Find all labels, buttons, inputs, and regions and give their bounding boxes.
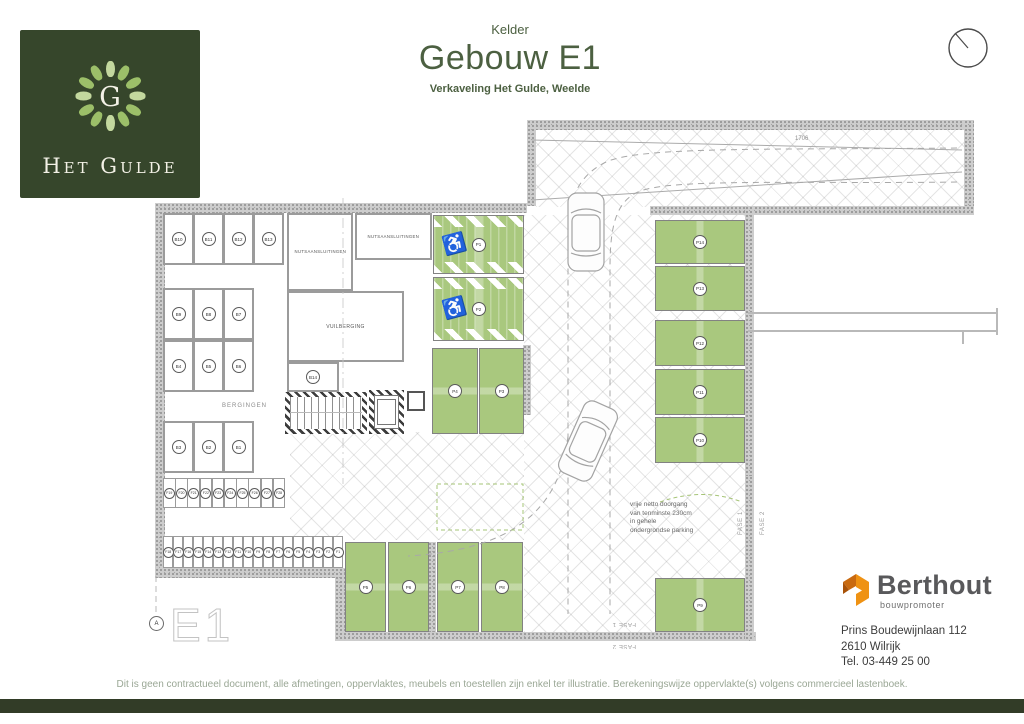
- pillar: [428, 542, 436, 632]
- bike-cell: F25: [236, 478, 249, 508]
- bike-cell: F21: [187, 478, 200, 508]
- bike-cell-label: F1: [333, 547, 344, 558]
- storage-room: B4: [163, 340, 194, 392]
- bike-cell: F6: [283, 536, 293, 568]
- room-label: B7: [232, 307, 246, 321]
- clearance-line: in gehele: [630, 518, 693, 527]
- address-line: Tel. 03-449 25 00: [841, 655, 967, 671]
- parking-spot-label: P6: [402, 580, 416, 594]
- room-label: B13: [262, 232, 276, 246]
- bike-cell-label: F28: [274, 488, 285, 499]
- storage-room: B9: [163, 288, 194, 340]
- parking-spot-label: P13: [693, 282, 707, 296]
- wall: [527, 120, 974, 130]
- bike-cell: F17: [173, 536, 183, 568]
- parking-spot: P14: [655, 220, 745, 264]
- bike-cell: F1: [333, 536, 343, 568]
- bike-cell-label: F23: [213, 488, 224, 499]
- parking-spot: P3: [479, 348, 524, 434]
- bike-cell: F13: [213, 536, 223, 568]
- storage-room: B2: [193, 421, 224, 473]
- fase-label: FASE 2: [760, 511, 766, 535]
- room-label: B8: [202, 307, 216, 321]
- wall: [745, 206, 754, 476]
- parking-spot: P8: [481, 542, 523, 632]
- developer-name: Berthout: [877, 570, 992, 601]
- bike-cell: F20: [175, 478, 188, 508]
- floorplan-sheet: G Het Gulde Kelder Gebouw E1 Verkaveling…: [0, 0, 1024, 724]
- bike-cell-label: F25: [237, 488, 248, 499]
- room-label: NUTSAANSLUITINGEN: [368, 234, 420, 239]
- parking-spot-label: P4: [448, 384, 462, 398]
- bike-cell: F22: [200, 478, 213, 508]
- parking-spot: P13: [655, 266, 745, 311]
- ramp-dimension: 1706: [795, 136, 808, 142]
- bike-cell-label: F24: [225, 488, 236, 499]
- room-label: B2: [202, 440, 216, 454]
- parking-spot-label: P7: [451, 580, 465, 594]
- wall: [335, 568, 345, 640]
- parking-spot: P5: [345, 542, 386, 632]
- corridor-label-bergingen: BERGINGEN: [222, 403, 267, 409]
- wall: [155, 568, 345, 578]
- parking-spot-label: P14: [693, 235, 707, 249]
- room-vuilberging: VUILBERGING: [287, 291, 404, 362]
- room-nutsaansluitingen-2: NUTSAANSLUITINGEN: [355, 213, 432, 260]
- bike-cell-label: F20: [176, 488, 187, 499]
- clearance-line: ondergrondse parking: [630, 527, 693, 536]
- bike-cell: F23: [212, 478, 225, 508]
- bike-cell: F2: [323, 536, 333, 568]
- parking-spot: P9: [655, 578, 745, 632]
- bike-cell-label: F21: [188, 488, 199, 499]
- parking-spot-label: P12: [693, 336, 707, 350]
- room-label: B9: [172, 307, 186, 321]
- bike-cell: F16: [183, 536, 193, 568]
- clearance-line: van tenminste 230cm: [630, 510, 693, 519]
- storage-room: B10: [163, 213, 194, 265]
- no-parking-stripes: [434, 278, 523, 289]
- parking-spot-label: P8: [495, 580, 509, 594]
- clearance-line: vrije netto doorgang: [630, 501, 693, 510]
- storage-room: B11: [193, 213, 224, 265]
- footer-bar: [0, 699, 1024, 713]
- sheet-label: E1: [170, 598, 234, 652]
- boundary-tick: [962, 331, 964, 344]
- bike-cell: F12: [223, 536, 233, 568]
- bike-cell: F8: [263, 536, 273, 568]
- fase-label: FASE 2: [612, 643, 636, 649]
- bike-cell: F15: [193, 536, 203, 568]
- utility-box: [407, 391, 425, 411]
- bike-cell-label: F26: [249, 488, 260, 499]
- grid-marker-a: A: [149, 616, 164, 631]
- bike-cell: F14: [203, 536, 213, 568]
- boundary-line: [748, 330, 998, 332]
- parking-spot-label: P1: [472, 238, 486, 252]
- bike-cell: F7: [273, 536, 283, 568]
- clearance-note: vrije netto doorgang van tenminste 230cm…: [630, 501, 693, 535]
- disclaimer-text: Dit is geen contractueel document, alle …: [0, 679, 1024, 690]
- bike-cell: F9: [253, 536, 263, 568]
- room-label: B1: [232, 440, 246, 454]
- parking-spot: ♿P1: [433, 215, 524, 274]
- parking-spot: P4: [432, 348, 478, 434]
- fase-label: FASE 1: [612, 621, 636, 627]
- bike-cell: F27: [261, 478, 274, 508]
- bike-cell: F26: [248, 478, 261, 508]
- bike-cell: F18: [163, 536, 173, 568]
- room-label: B12: [232, 232, 246, 246]
- room-label: NUTSAANSLUITINGEN: [294, 249, 346, 254]
- bike-cell: F10: [243, 536, 253, 568]
- parking-spot-label: P9: [693, 598, 707, 612]
- developer-tagline: bouwpromoter: [880, 600, 945, 610]
- bike-cell: F5: [293, 536, 303, 568]
- storage-room: B8: [193, 288, 224, 340]
- wheelchair-icon: ♿: [441, 232, 469, 256]
- no-parking-stripes: [434, 262, 523, 273]
- room-label: B4: [172, 359, 186, 373]
- bike-cell: F24: [224, 478, 237, 508]
- bike-cell-label: F27: [261, 488, 272, 499]
- room-label: B10: [172, 232, 186, 246]
- staircase-steps: [290, 397, 362, 429]
- no-parking-stripes: [434, 329, 523, 340]
- storage-room: B13: [253, 213, 284, 265]
- storage-room: B6: [223, 340, 254, 392]
- wall: [523, 345, 531, 415]
- storage-room: B5: [193, 340, 224, 392]
- boundary-line: [748, 312, 998, 314]
- address-line: Prins Boudewijnlaan 112: [841, 624, 967, 640]
- parking-spot-label: P3: [495, 384, 509, 398]
- storage-room: B1: [223, 421, 254, 473]
- storage-room: B3: [163, 421, 194, 473]
- parking-spot: P12: [655, 320, 745, 366]
- parking-spot: P6: [388, 542, 429, 632]
- wall: [964, 120, 974, 215]
- wall: [155, 203, 527, 213]
- room-label: B5: [202, 359, 216, 373]
- bike-cell: F11: [233, 536, 243, 568]
- phase-wall: [745, 476, 754, 641]
- room-label: VUILBERGING: [326, 324, 365, 330]
- storage-room: B7: [223, 288, 254, 340]
- parking-spot-label: P5: [359, 580, 373, 594]
- room-label: B11: [202, 232, 216, 246]
- parking-spot: ♿P2: [433, 277, 524, 341]
- parking-spot-label: P2: [472, 302, 486, 316]
- parking-spot: P11: [655, 369, 745, 415]
- address-line: 2610 Wilrijk: [841, 640, 967, 656]
- fase-label: FASE 1: [738, 511, 744, 535]
- bike-cell: F4: [303, 536, 313, 568]
- berthout-logo-icon: [841, 573, 871, 607]
- parking-spot-label: P11: [693, 385, 707, 399]
- staircase-divider: [290, 412, 362, 413]
- room-label: B3: [172, 440, 186, 454]
- room-nutsaansluitingen-1: NUTSAANSLUITINGEN: [287, 213, 353, 291]
- developer-address: Prins Boudewijnlaan 112 2610 Wilrijk Tel…: [841, 624, 967, 671]
- storage-room: B12: [223, 213, 254, 265]
- bike-cell-label: F19: [164, 488, 175, 499]
- bike-cell-label: F22: [200, 488, 211, 499]
- parking-spot: P10: [655, 417, 745, 463]
- room-b14: B14: [287, 362, 339, 392]
- elevator-cab-inner: [377, 399, 396, 425]
- no-parking-stripes: [434, 216, 523, 227]
- wall: [335, 632, 756, 641]
- ramp-floor: [536, 130, 964, 207]
- bike-cell: F28: [273, 478, 286, 508]
- wall: [527, 120, 536, 206]
- wall: [650, 206, 974, 215]
- plan-drawing: NUTSAANSLUITINGEN NUTSAANSLUITINGEN VUIL…: [0, 0, 1024, 724]
- room-label: B6: [232, 359, 246, 373]
- boundary-line: [996, 308, 998, 335]
- parking-spot-label: P10: [693, 433, 707, 447]
- parking-spot: P7: [437, 542, 479, 632]
- room-label: B14: [306, 370, 320, 384]
- bike-cell: F3: [313, 536, 323, 568]
- bike-cell: F19: [163, 478, 176, 508]
- lower-aisle-floor: [290, 432, 524, 540]
